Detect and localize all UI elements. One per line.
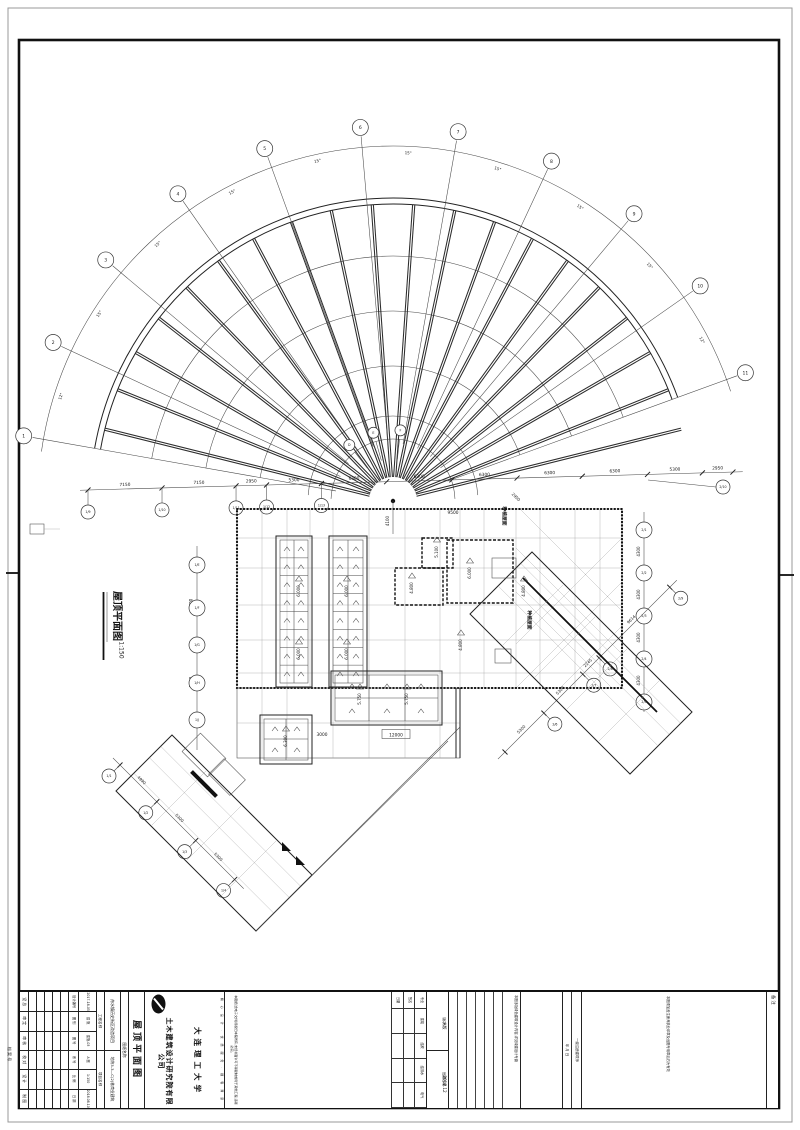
sign-label: 设 计 bbox=[20, 1069, 28, 1088]
field-value: 2017-18-05 bbox=[78, 992, 96, 1011]
svg-text:2/9: 2/9 bbox=[678, 596, 683, 600]
version-value: A版 bbox=[439, 1004, 448, 1048]
company-slogan: 精 心 设 计 · 优 质 服 务 · 顾 客 满 意 bbox=[219, 994, 223, 1106]
field-label: 比 例 bbox=[68, 1069, 78, 1088]
divider bbox=[581, 992, 582, 1108]
svg-text:12°: 12° bbox=[698, 336, 706, 345]
sheet-borders bbox=[6, 8, 794, 1122]
svg-text:7150: 7150 bbox=[193, 480, 204, 486]
svg-text:4.800: 4.800 bbox=[521, 585, 526, 597]
sign-label: 校 对 bbox=[20, 1050, 28, 1069]
green-building-note: 本图涉及绿色建筑设计内容,详见绿建设计专篇 bbox=[511, 995, 519, 1105]
svg-text:1: 1 bbox=[22, 434, 25, 440]
field-label: 图 别 bbox=[68, 1011, 78, 1030]
svg-text:5300: 5300 bbox=[174, 813, 185, 824]
margin-note: 档 案 号 bbox=[4, 1025, 13, 1083]
svg-text:1/4: 1/4 bbox=[221, 889, 226, 893]
svg-text:4.800: 4.800 bbox=[409, 582, 414, 594]
svg-text:9500: 9500 bbox=[448, 510, 459, 516]
project-value: 舟水镇历史街区改造项目 bbox=[104, 992, 120, 1050]
svg-text:7: 7 bbox=[457, 129, 460, 135]
sign-label: 设 总 bbox=[20, 992, 28, 1011]
svg-text:1:150: 1:150 bbox=[118, 641, 125, 658]
svg-text:12°: 12° bbox=[57, 392, 64, 400]
svg-text:2950: 2950 bbox=[246, 478, 257, 484]
plan-canvas: 123456789101112°15°15°15°15°15°15°15°15°… bbox=[0, 0, 800, 1130]
remark-label: 备 注 bbox=[766, 995, 780, 1105]
svg-text:6300: 6300 bbox=[609, 468, 620, 474]
company-names: 大连理工大学 土木建筑设计研究院有限公司 Design Institute of… bbox=[144, 1017, 219, 1106]
svg-text:5300: 5300 bbox=[288, 477, 299, 483]
sheet-name-value: 屋顶平面图 bbox=[128, 992, 144, 1108]
registered-architect-date: 年 月 日 bbox=[562, 992, 572, 1108]
issue-date-value: 2017.12 bbox=[439, 1062, 448, 1106]
countersign-label: 日期 bbox=[391, 992, 403, 1009]
svg-text:1/F: 1/F bbox=[195, 606, 200, 610]
svg-text:15°: 15° bbox=[228, 188, 237, 196]
svg-text:6.300: 6.300 bbox=[283, 735, 288, 747]
building-plan bbox=[30, 509, 692, 931]
svg-text:2950: 2950 bbox=[712, 465, 723, 471]
svg-text:4: 4 bbox=[176, 191, 179, 197]
stamp-note: 本图须加盖注册师执业印章及出图专用章后方为有效 bbox=[663, 996, 672, 1104]
countersign-table: 专业 建筑 结构 给排水 电气 签名 日期 bbox=[391, 992, 426, 1108]
field-value: A 图 bbox=[78, 1050, 96, 1069]
svg-text:9: 9 bbox=[633, 211, 636, 217]
svg-text:5.750: 5.750 bbox=[404, 693, 409, 705]
svg-text:8: 8 bbox=[550, 159, 553, 165]
item-label: 项目名称 bbox=[96, 1050, 104, 1108]
svg-text:12000: 12000 bbox=[389, 733, 403, 739]
countersign-header: 专业 bbox=[414, 992, 426, 1009]
svg-text:屋顶平面图: 屋顶平面图 bbox=[111, 591, 123, 641]
svg-text:6300: 6300 bbox=[479, 472, 490, 478]
registered-architect-cell: 一级注册建筑师 年 月 日 bbox=[562, 992, 581, 1108]
svg-text:1/G: 1/G bbox=[194, 643, 200, 647]
svg-text:E: E bbox=[372, 431, 374, 435]
field-value: 1:150 bbox=[78, 1069, 96, 1088]
svg-text:15°: 15° bbox=[153, 240, 162, 248]
company-name-university: 大连理工大学 bbox=[192, 1017, 201, 1106]
svg-text:10: 10 bbox=[697, 284, 703, 290]
field-label: 设计编号 bbox=[68, 992, 78, 1011]
svg-text:F: F bbox=[399, 429, 401, 433]
skylights bbox=[260, 536, 442, 764]
field-value: 建 施 bbox=[78, 1011, 96, 1030]
svg-text:1/3: 1/3 bbox=[182, 850, 187, 854]
svg-text:1/J: 1/J bbox=[195, 718, 199, 722]
svg-text:6300: 6300 bbox=[544, 470, 555, 476]
svg-text:5300: 5300 bbox=[213, 851, 224, 862]
project-label: 工程名称 bbox=[96, 992, 104, 1050]
svg-text:5300: 5300 bbox=[669, 467, 680, 473]
svg-text:6: 6 bbox=[359, 125, 362, 131]
field-value: 建施-03 bbox=[78, 1031, 96, 1050]
svg-text:3000: 3000 bbox=[317, 732, 328, 738]
svg-text:2/1: 2/1 bbox=[641, 528, 646, 532]
svg-text:4300: 4300 bbox=[636, 589, 641, 600]
svg-text:6300: 6300 bbox=[348, 475, 359, 481]
svg-text:1/H: 1/H bbox=[194, 681, 200, 685]
svg-text:种植屋面: 种植屋面 bbox=[501, 505, 508, 525]
svg-text:3: 3 bbox=[104, 258, 107, 264]
svg-text:2/4: 2/4 bbox=[641, 657, 646, 661]
field-value: 2018.08.10 bbox=[78, 1089, 96, 1108]
svg-text:5.100: 5.100 bbox=[434, 546, 439, 558]
svg-text:6.000: 6.000 bbox=[296, 585, 301, 597]
svg-text:2/6: 2/6 bbox=[552, 722, 557, 726]
field-label: 日 期 bbox=[68, 1089, 78, 1108]
svg-text:6.000: 6.000 bbox=[296, 648, 301, 660]
svg-text:9614: 9614 bbox=[626, 614, 637, 625]
svg-text:15°: 15° bbox=[576, 203, 585, 211]
svg-text:15°: 15° bbox=[405, 150, 412, 155]
drawing-title: 屋顶平面图1:150 bbox=[104, 591, 125, 660]
svg-text:5.750: 5.750 bbox=[357, 693, 362, 705]
svg-text:11: 11 bbox=[743, 370, 749, 376]
svg-text:1/13: 1/13 bbox=[318, 504, 325, 508]
divider bbox=[520, 992, 521, 1108]
svg-text:15°: 15° bbox=[494, 165, 502, 172]
countersign-label: 签名 bbox=[403, 992, 415, 1009]
company-name-institute: 土木建筑设计研究院有限公司 bbox=[156, 1017, 173, 1106]
svg-text:2/2: 2/2 bbox=[641, 571, 646, 575]
company-logo bbox=[147, 994, 186, 1014]
sheet-name-label: 图纸名称 bbox=[120, 992, 128, 1108]
svg-text:4300: 4300 bbox=[636, 546, 641, 557]
svg-text:1/9: 1/9 bbox=[85, 510, 90, 514]
radial-beams bbox=[105, 205, 682, 497]
countersign-header: 建筑 bbox=[414, 1009, 426, 1034]
divider bbox=[448, 992, 449, 1108]
svg-text:4990: 4990 bbox=[136, 775, 147, 786]
svg-text:15°: 15° bbox=[646, 261, 654, 270]
svg-text:2: 2 bbox=[52, 340, 55, 346]
registered-architect-label: 一级注册建筑师 bbox=[572, 992, 582, 1108]
svg-text:4.800: 4.800 bbox=[458, 639, 463, 651]
svg-text:5300: 5300 bbox=[516, 724, 527, 735]
field-label: 图 号 bbox=[68, 1031, 78, 1050]
svg-text:4300: 4300 bbox=[636, 675, 641, 686]
svg-text:1/10: 1/10 bbox=[158, 508, 165, 512]
drawing-sheet: { "sheet": { "margin_note": "档 案 号" }, "… bbox=[0, 0, 800, 1130]
svg-text:2950: 2950 bbox=[511, 492, 522, 503]
svg-text:1/1: 1/1 bbox=[106, 774, 111, 778]
svg-text:15°: 15° bbox=[95, 309, 103, 318]
svg-text:6.000: 6.000 bbox=[344, 585, 349, 597]
dimension-chains: 7150715029505300630063006300630063005300… bbox=[80, 465, 743, 897]
svg-text:5: 5 bbox=[263, 146, 266, 152]
svg-text:6300: 6300 bbox=[414, 474, 425, 480]
countersign-header: 电气 bbox=[414, 1083, 426, 1108]
svg-text:1/E: 1/E bbox=[194, 563, 199, 567]
svg-text:2/10: 2/10 bbox=[719, 485, 726, 489]
company-block: 精 心 设 计 · 优 质 服 务 · 顾 客 满 意 大连理工大学 土木建筑设… bbox=[144, 992, 224, 1108]
copyright-note: 本图纸(含电子文件)版权归本院所有,未经书面许可不得复制或用于其他工程,违者必究… bbox=[228, 994, 238, 1106]
svg-text:2245: 2245 bbox=[582, 657, 593, 668]
divider bbox=[224, 992, 225, 1108]
svg-text:15°: 15° bbox=[314, 158, 322, 164]
item-value: 地块3-3—C(2)栋商业建筑 bbox=[104, 1050, 120, 1108]
svg-text:4300: 4300 bbox=[636, 632, 641, 643]
svg-text:1/2: 1/2 bbox=[143, 811, 148, 815]
title-block: 设 总 审 定 审 核 校 对 设 计 制 图 设计编号 2017-18-05 … bbox=[20, 990, 778, 1108]
sign-label: 审 核 bbox=[20, 1031, 28, 1050]
svg-text:6.000: 6.000 bbox=[344, 648, 349, 660]
svg-text:5300: 5300 bbox=[555, 685, 566, 696]
sign-label: 制 图 bbox=[20, 1089, 28, 1108]
countersign-header: 结构 bbox=[414, 1034, 426, 1059]
svg-text:6.000: 6.000 bbox=[467, 567, 472, 579]
field-label: 系 号 bbox=[68, 1050, 78, 1069]
plan-annotations: 6.0006.0006.0006.0004.8005.1006.0005.750… bbox=[283, 492, 534, 747]
svg-text:7150: 7150 bbox=[119, 482, 130, 488]
svg-text:种植屋面: 种植屋面 bbox=[526, 609, 533, 629]
svg-text:4100: 4100 bbox=[385, 515, 390, 526]
countersign-header: 给排水 bbox=[414, 1059, 426, 1084]
sign-label: 审 定 bbox=[20, 1011, 28, 1030]
